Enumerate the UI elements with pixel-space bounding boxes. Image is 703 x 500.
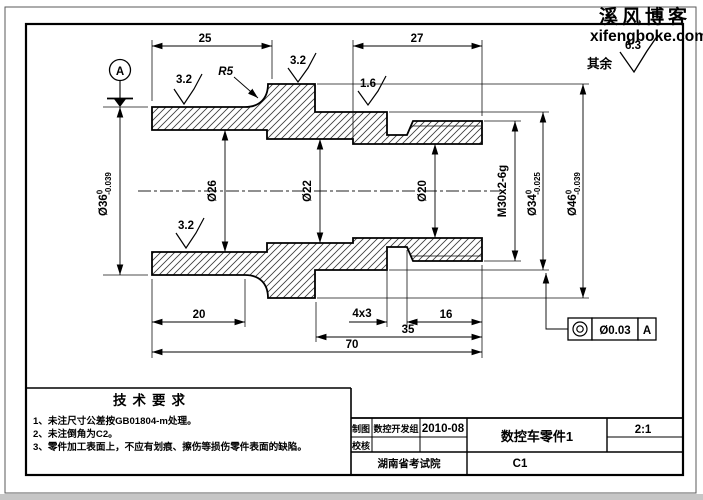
dim-dia26-label: Ø26 [207,180,219,202]
fcf-datum: A [643,325,651,337]
dim-r5-label: R5 [218,66,233,78]
watermark-site-name: 溪风博客 [599,5,691,28]
dim-20-label: 20 [193,309,206,321]
dim-35-label: 35 [402,324,415,336]
fcf-value: Ø0.03 [599,325,630,337]
general-roughness-prefix: 其余 [587,56,613,71]
drawn-label: 制图 [352,423,370,434]
tech-req-item: 2、未注倒角为C2。 [33,428,118,440]
sheet-edge-shadow [0,494,703,500]
dim-16-label: 16 [440,309,453,321]
tech-req-title: 技术要求 [113,392,191,408]
general-roughness-value: 6.3 [625,40,641,52]
watermark-site-url: xifengboke.com [590,28,703,45]
dim-70-label: 70 [346,339,359,351]
part-name: 数控车零件1 [501,429,573,444]
drawn-by: 数控开发组 [373,423,418,434]
svg-text:Ø20: Ø20 [417,180,429,202]
organization: 湖南省考试院 [378,457,441,470]
fcf-symbol-cell [568,318,592,340]
roughness-3-2-label: 3.2 [176,74,192,86]
dim-25-label: 25 [199,33,212,45]
svg-text:M30x2-6g: M30x2-6g [497,165,509,217]
dim-dia22-label: Ø22 [302,180,314,202]
roughness-1-6-label: 1.6 [360,78,376,90]
scale: 2:1 [635,424,652,436]
dim-thread-label: M30x2-6g [497,165,509,217]
drawing-number: C1 [513,458,528,470]
date: 2010-08 [422,423,465,435]
roughness-3-2-label: 3.2 [178,220,194,232]
checked-label: 校核 [352,440,370,451]
roughness-3-2-label: 3.2 [290,55,306,67]
tech-req-item: 1、未注尺寸公差按GB01804-m处理。 [33,415,197,427]
drawing-sheet: 溪风博客 xifengboke.com 其余 6.3 A [0,0,703,500]
datum-letter: A [116,66,124,78]
tech-req-item: 3、零件加工表面上，不应有划痕、擦伤等损伤零件表面的缺陷。 [33,441,307,453]
dim-4x3-label: 4x3 [352,308,371,320]
engineering-drawing: 溪风博客 xifengboke.com 其余 6.3 A [0,0,703,500]
dim-27-label: 27 [411,33,424,45]
dim-dia20-label: Ø20 [417,180,429,202]
svg-text:Ø22: Ø22 [302,180,314,202]
svg-text:Ø26: Ø26 [207,180,219,202]
